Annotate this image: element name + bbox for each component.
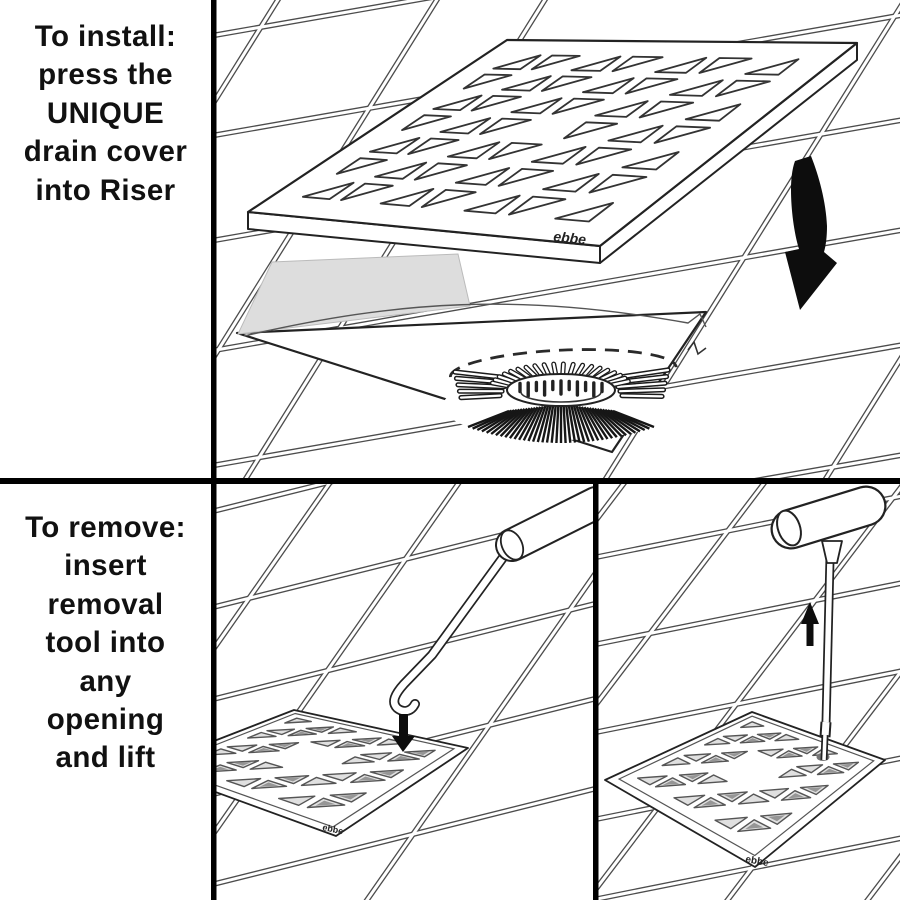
svg-text:ebbe: ebbe	[553, 228, 587, 247]
